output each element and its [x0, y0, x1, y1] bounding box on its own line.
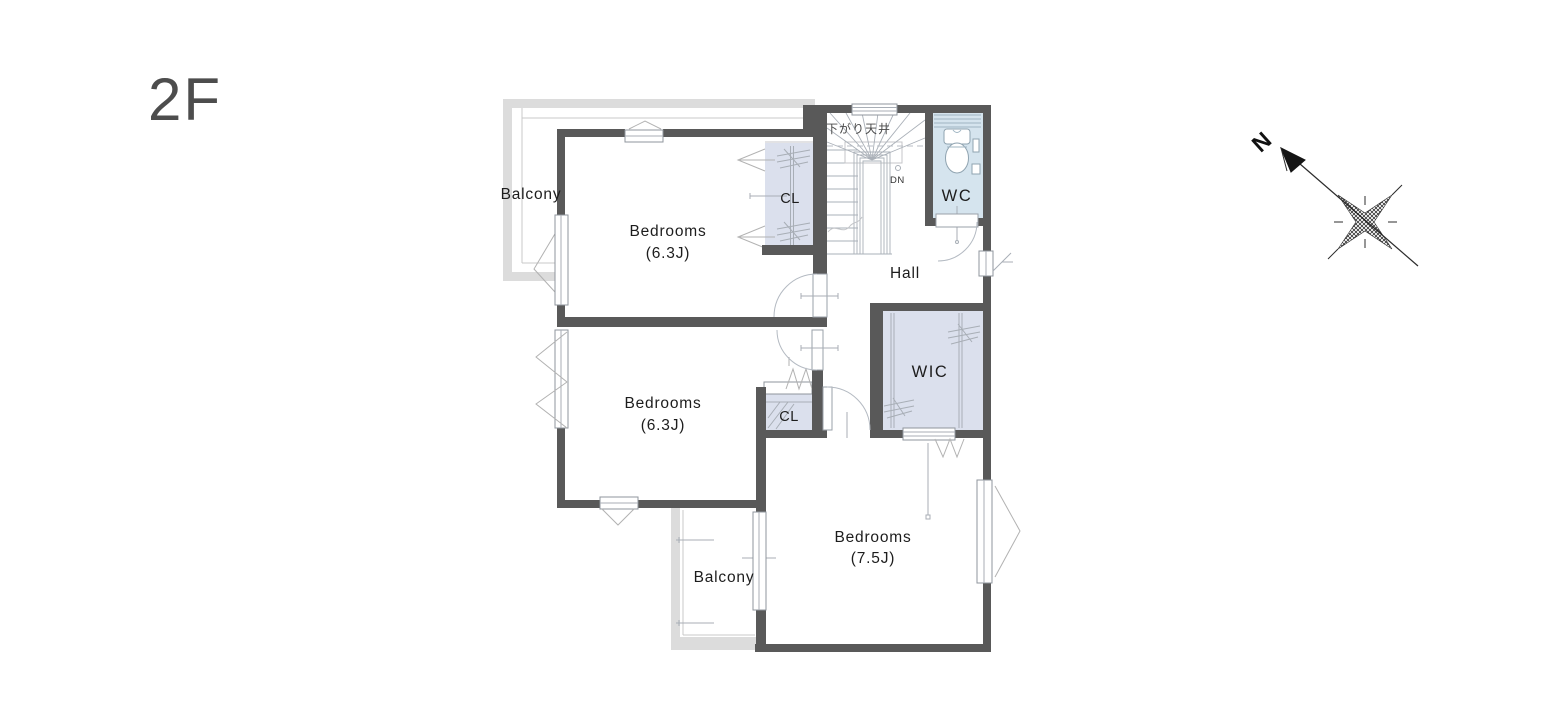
closet-top-label: CL: [780, 191, 800, 207]
paper-holder-icon: [972, 164, 980, 174]
window: [600, 497, 638, 525]
bedroom-3-size: (7.5J): [851, 550, 895, 567]
door: [823, 387, 870, 438]
wc-label: WC: [942, 187, 973, 205]
compass: N: [1247, 127, 1418, 266]
window: [852, 104, 897, 115]
bedroom-2-label: Bedrooms: [624, 395, 701, 412]
door: [774, 274, 838, 317]
window: [625, 121, 663, 142]
bedroom-3-label: Bedrooms: [834, 529, 911, 546]
window: [979, 251, 1013, 276]
lowered-ceiling-label: 下がり天井: [826, 121, 891, 136]
wic-label: WIC: [912, 363, 949, 381]
window: [903, 428, 964, 519]
closet-bottom-label: CL: [779, 409, 799, 425]
toilet-icon: [944, 129, 970, 173]
hall-label: Hall: [890, 265, 920, 282]
floor-plan-page: 2F: [0, 0, 1568, 728]
floor-plan: 2F: [0, 0, 1568, 728]
winder-lines: [827, 113, 925, 160]
bedroom-2-size: (6.3J): [641, 417, 685, 434]
stair-handrail: [852, 152, 892, 254]
dn-marker: [896, 166, 901, 171]
bedroom-1-size: (6.3J): [646, 245, 690, 262]
window: [977, 480, 1020, 583]
window: [555, 215, 568, 305]
page-title: 2F: [148, 66, 222, 133]
door: [777, 330, 838, 370]
balcony-top-label: Balcony: [501, 186, 562, 203]
stairs: DN 下がり天井: [826, 113, 925, 254]
balcony-bottom-label: Balcony: [694, 569, 755, 586]
stairs-direction-label: DN: [890, 175, 905, 186]
bedroom-1-label: Bedrooms: [629, 223, 706, 240]
north-label: N: [1247, 127, 1277, 157]
window: [753, 512, 766, 610]
stair-treads: [827, 150, 858, 254]
window: [536, 330, 568, 428]
towel-bar-icon: [973, 139, 979, 152]
